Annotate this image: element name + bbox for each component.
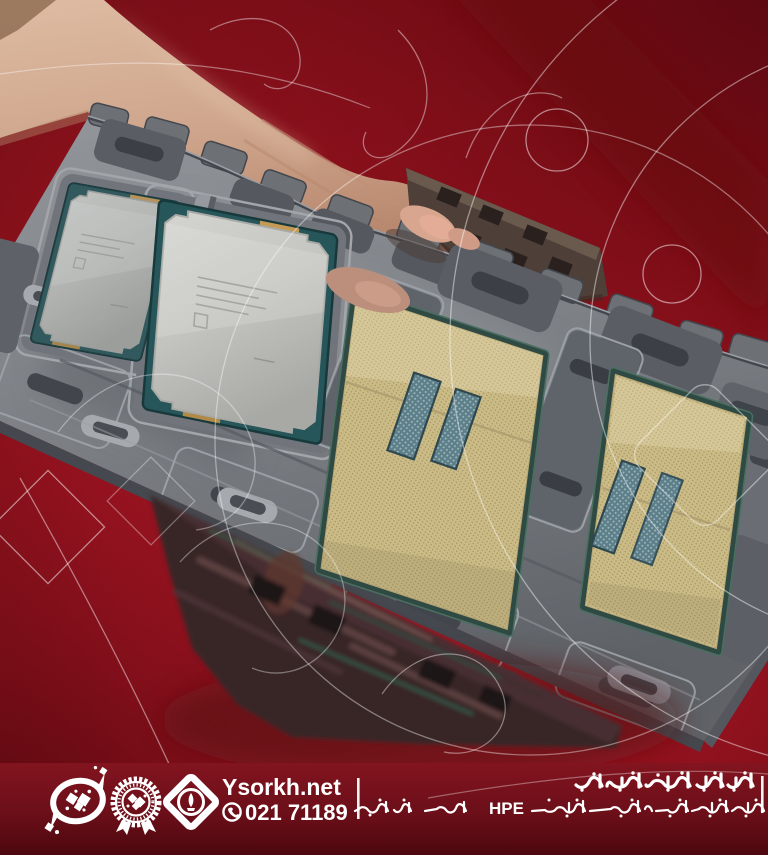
svg-text:Ysorkh.net: Ysorkh.net bbox=[222, 774, 341, 800]
svg-text:HPE: HPE bbox=[489, 799, 524, 818]
svg-text:021 71189: 021 71189 bbox=[245, 800, 348, 825]
